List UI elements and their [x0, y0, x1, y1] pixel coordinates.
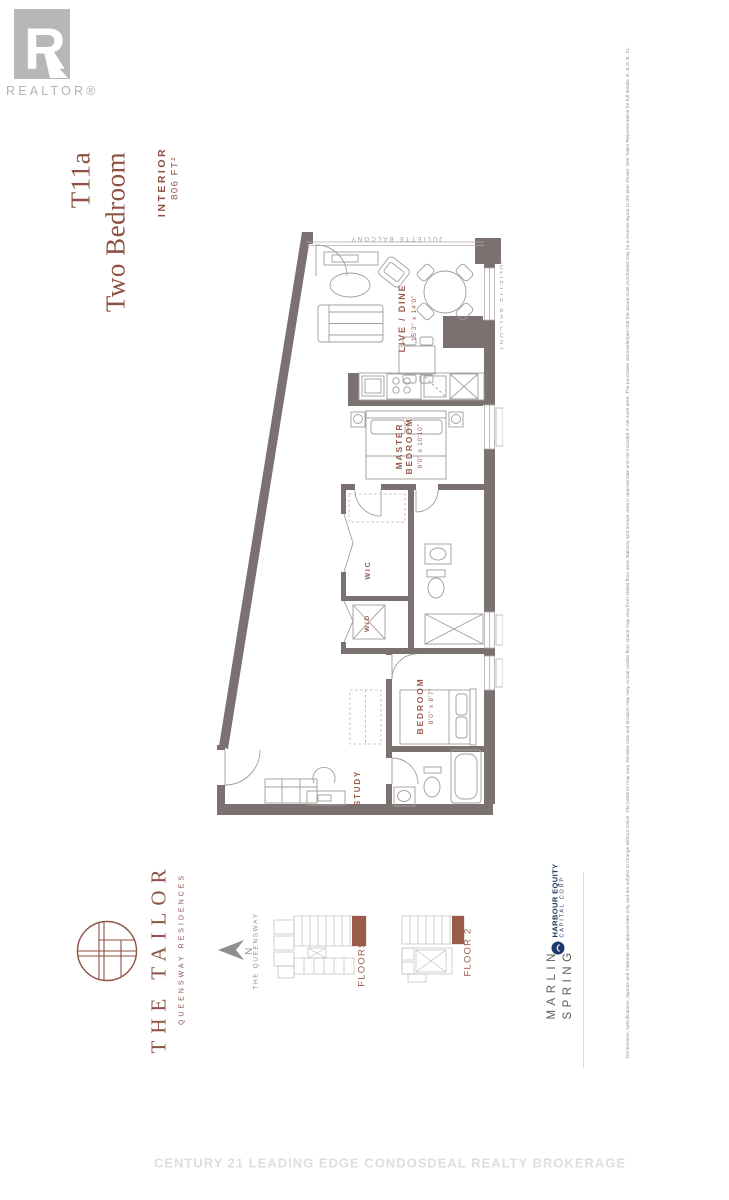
wd-label: W/D: [364, 614, 371, 632]
floorplan-sheet: R REALTOR® T11a Two Bedroom INTERIOR 806…: [0, 0, 729, 1200]
bedroom-label: BEDROOM: [415, 678, 425, 735]
bath2-fixtures: [394, 750, 481, 806]
master-bedroom-label-2: BEDROOM: [404, 418, 414, 475]
realtor-wordmark: REALTOR®: [6, 84, 99, 98]
wic-closet: [349, 494, 405, 744]
master-bedroom-dims: 9'0" x 10'10": [417, 424, 424, 469]
floor-plan: JULIETTE BALCONY JULIETTE BALCONY LIVE /…: [203, 228, 503, 853]
disclaimer-text: Dimensions, specifications, layouts and …: [626, 862, 632, 1058]
marlin-spring-logo: MARLIN SPRING: [544, 948, 576, 1019]
bath-fixtures: [353, 544, 483, 644]
kitchen: [359, 373, 484, 400]
harbour-line1: HARBOUR EQUITY: [551, 864, 560, 938]
study-label: STUDY: [353, 770, 362, 806]
master-bedroom-label-1: MASTER: [394, 423, 404, 470]
brokerage-watermark: CENTURY 21 LEADING EDGE CONDOSDEAL REALT…: [154, 1156, 626, 1171]
marlin-line2: SPRING: [560, 948, 576, 1019]
marlin-line1: MARLIN: [544, 948, 560, 1019]
bedroom-furniture: [400, 689, 476, 745]
study-furniture: [265, 767, 345, 805]
unit-number: T11a: [66, 152, 97, 208]
interior-area: 806 FT²: [170, 156, 181, 200]
interior-label: INTERIOR: [156, 147, 168, 217]
street-label: THE QUEENSWAY: [253, 912, 260, 989]
wic-label: WIC: [365, 560, 372, 579]
keyplan1-label: FLOORS 3-6: [357, 919, 368, 986]
tailor-emblem: [74, 918, 140, 984]
juliette-balcony-right-label: JULIETTE BALCONY: [498, 260, 503, 353]
juliette-balcony-top-label: JULIETTE BALCONY: [350, 235, 443, 242]
unit-type: Two Bedroom: [101, 152, 132, 312]
keyplan2-label: FLOOR 2: [463, 927, 474, 976]
harbour-equity-logo: HARBOUR EQUITY CAPITAL CORP: [551, 864, 566, 955]
harbour-equity-icon: [552, 941, 565, 954]
live-dine-label: LIVE / DINE: [397, 284, 407, 353]
walls: [217, 232, 501, 815]
harbour-line2: CAPITAL CORP: [560, 864, 566, 938]
bedroom-dims: 8'0" x 8'7": [428, 688, 435, 724]
disclaimer-wrap: Dimensions, specifications, layouts and …: [626, 862, 632, 1058]
realtor-logo: R: [10, 6, 90, 84]
keyplan-floor-2: [388, 912, 468, 984]
project-name: THE TAILOR: [147, 863, 172, 1054]
footer-divider: [583, 872, 584, 1068]
live-dine-dims: 15'3" x 14'0": [411, 295, 418, 341]
keyplan-floors-3-6: [270, 912, 370, 992]
project-subtitle: QUEENSWAY RESIDENCES: [179, 873, 186, 1025]
